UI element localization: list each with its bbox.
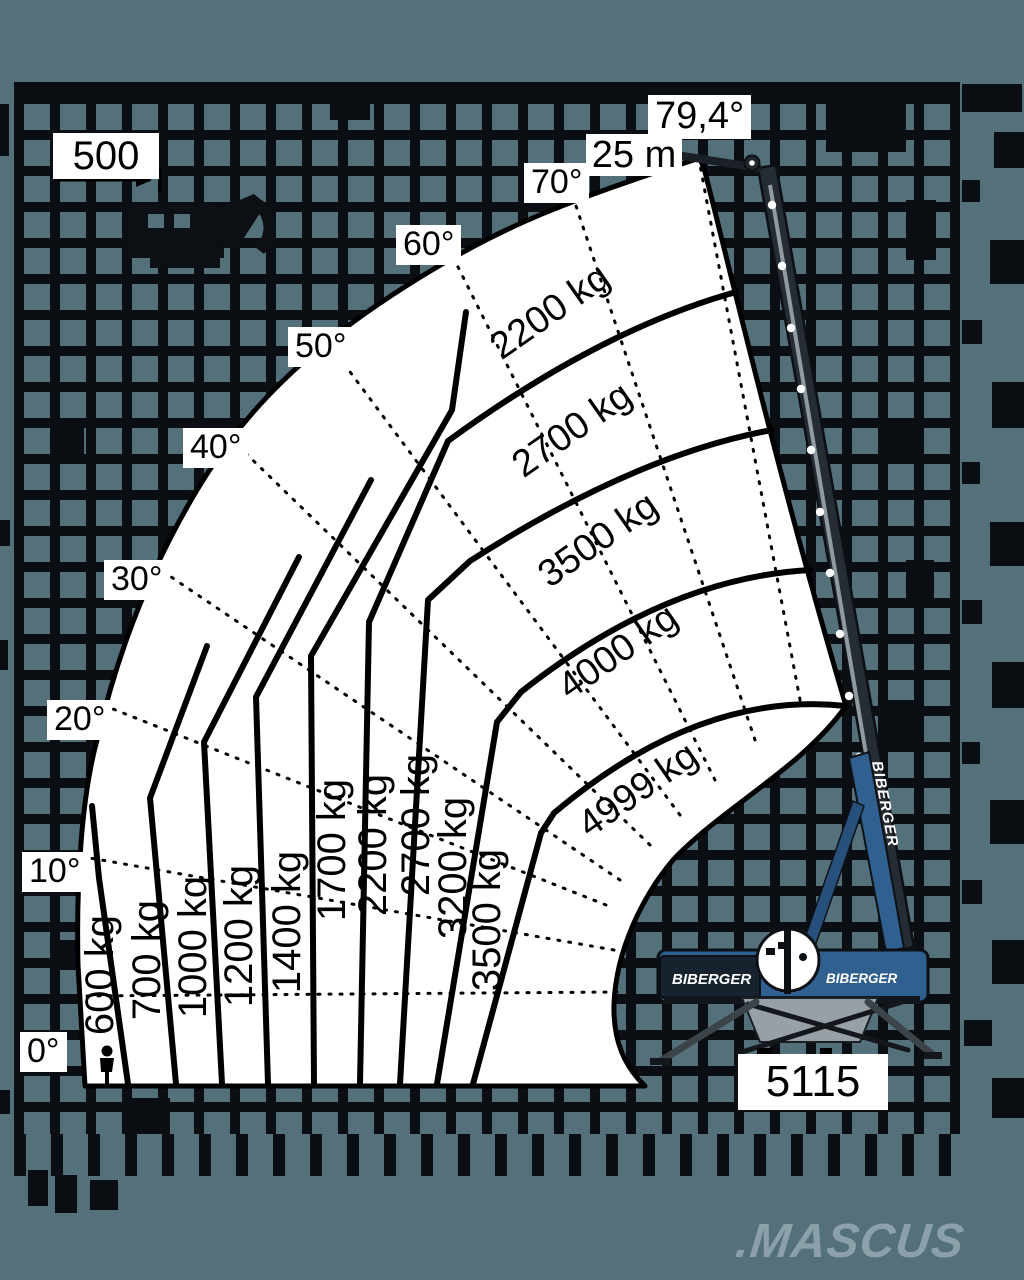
mascus-watermark: .MASCUS: [733, 1214, 967, 1269]
load-diagram-svg: BIBERGER BIBERGER BIBERGER: [0, 0, 1024, 1280]
turntable-icon: [757, 926, 819, 994]
dimension-arrows-5115: [742, 1048, 883, 1108]
chassis-right-brand-text: BIBERGER: [826, 971, 898, 986]
jib-winch-block: [636, 140, 652, 156]
tip-pulley-hub: [749, 160, 755, 166]
dimension-arrow-500: [57, 168, 160, 192]
boom-lift-cylinder: [800, 801, 864, 955]
chassis-left-brand-text: BIBERGER: [672, 971, 751, 988]
crane-load-chart-page: BIBERGER BIBERGER BIBERGER: [0, 0, 1024, 1280]
excavator-icon: [126, 194, 275, 268]
outriggers: [650, 998, 942, 1065]
